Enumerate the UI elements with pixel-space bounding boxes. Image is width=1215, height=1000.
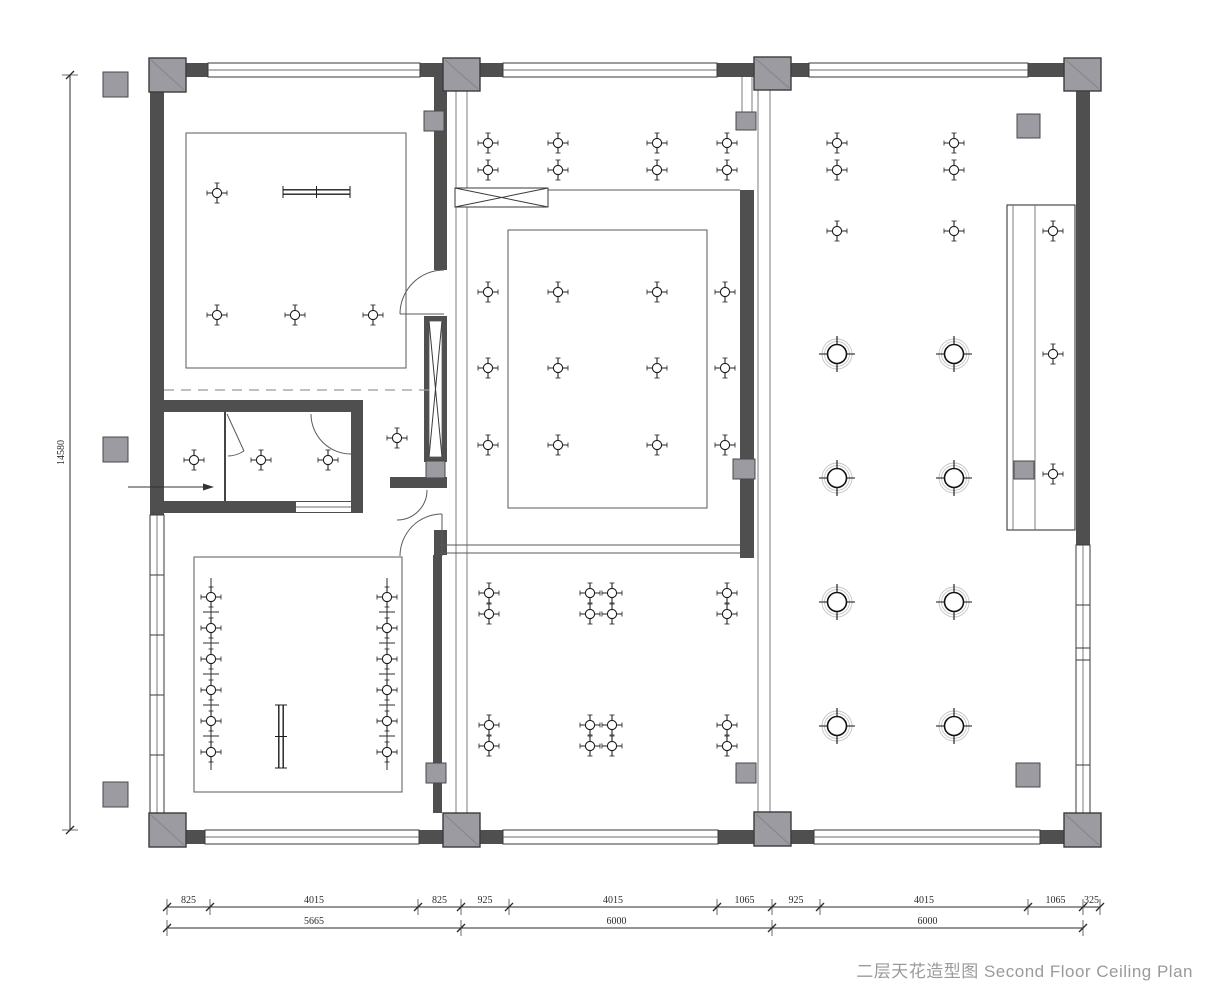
ceiling-light-small: [602, 583, 622, 603]
dimension-label: 825: [432, 895, 447, 906]
ceiling-light-small: [602, 736, 622, 756]
ceiling-light-small: [602, 715, 622, 735]
track-light-lines-layer: [203, 578, 395, 770]
ceiling-light-small: [363, 305, 383, 325]
dimension-label: 4015: [603, 895, 623, 906]
ceiling-light-small: [201, 711, 221, 731]
ceiling-light-small: [715, 358, 735, 378]
window-band-top: [208, 63, 1028, 77]
ceiling-light-small: [377, 711, 397, 731]
ceiling-light-small: [548, 282, 568, 302]
corner-column: [149, 58, 186, 92]
linear-light-fixture: [283, 186, 350, 198]
ceiling-light-small: [184, 450, 204, 470]
ceiling-light-small: [377, 587, 397, 607]
ceiling-light-small: [647, 435, 667, 455]
ceiling-features: [186, 133, 1075, 792]
door-small-room-partition: [227, 414, 244, 456]
ceiling-light-small: [207, 183, 227, 203]
door-corridor: [397, 490, 427, 520]
ceiling-light-large: [819, 708, 855, 744]
ceiling-light-small: [479, 736, 499, 756]
dimension-label: 6000: [607, 916, 627, 927]
ceiling-light-small: [827, 160, 847, 180]
doors: [227, 270, 444, 556]
beam-x-box: [455, 188, 548, 207]
ceiling-light-small: [647, 160, 667, 180]
dimension-label-vertical: 14580: [56, 440, 67, 465]
ceiling-light-small: [318, 450, 338, 470]
window-band-bottom: [205, 830, 1040, 844]
ceiling-light-small: [717, 604, 737, 624]
linear-fixture-layer: [275, 186, 350, 768]
ceiling-light-small: [580, 604, 600, 624]
ceiling-plan-canvas: 8254015825925401510659254015106532556656…: [0, 0, 1215, 1000]
ceiling-light-small: [548, 160, 568, 180]
ceiling-light-small: [201, 680, 221, 700]
dimension-label: 6000: [918, 916, 938, 927]
dimension-label: 4015: [914, 895, 934, 906]
ceiling-light-small: [479, 604, 499, 624]
coffer-bottom-left-room: [194, 557, 402, 792]
ceiling-light-small: [377, 649, 397, 669]
shaft: [424, 316, 447, 462]
ceiling-light-small: [387, 428, 407, 448]
ceiling-light-small: [478, 160, 498, 180]
ceiling-light-large: [936, 708, 972, 744]
floor-plan-drawing: 8254015825925401510659254015106532556656…: [0, 0, 1215, 1000]
ceiling-light-small: [717, 736, 737, 756]
ceiling-light-small: [548, 133, 568, 153]
ceiling-light-small: [479, 583, 499, 603]
ceiling-light-small: [827, 221, 847, 241]
ceiling-light-small: [580, 715, 600, 735]
ceiling-light-small: [201, 587, 221, 607]
ceiling-light-small: [377, 680, 397, 700]
ceiling-light-small: [548, 435, 568, 455]
ceiling-light-small: [478, 435, 498, 455]
ceiling-light-small: [548, 358, 568, 378]
window-band-left: [150, 515, 164, 813]
ceiling-light-small: [251, 450, 271, 470]
dimension-label: 4015: [304, 895, 324, 906]
ceiling-light-small: [717, 583, 737, 603]
ceiling-light-small: [602, 604, 622, 624]
ceiling-light-small: [377, 742, 397, 762]
ceiling-light-small: [944, 133, 964, 153]
dimension-label: 925: [478, 895, 493, 906]
dimension-label: 5665: [304, 916, 324, 927]
ceiling-light-small: [944, 160, 964, 180]
dimension-label: 1065: [1046, 895, 1066, 906]
ceiling-light-small: [201, 618, 221, 638]
ceiling-light-small: [377, 618, 397, 638]
ceiling-light-small: [580, 583, 600, 603]
ceiling-light-large: [819, 584, 855, 620]
ceiling-light-small: [647, 133, 667, 153]
dimension-label: 825: [181, 895, 196, 906]
dimension-label: 925: [789, 895, 804, 906]
ceiling-light-large: [936, 336, 972, 372]
ceiling-light-small: [827, 133, 847, 153]
ceiling-light-small: [944, 221, 964, 241]
ceiling-light-small: [285, 305, 305, 325]
ceiling-light-small: [201, 742, 221, 762]
linear-light-fixture: [275, 705, 287, 768]
entry-arrow: [128, 484, 214, 491]
ceiling-light-large: [936, 584, 972, 620]
ceiling-light-small: [717, 133, 737, 153]
ceiling-light-small: [478, 358, 498, 378]
door-top-left-room: [400, 270, 444, 314]
ceiling-light-large: [819, 460, 855, 496]
ceiling-light-small: [715, 435, 735, 455]
ceiling-light-small: [580, 736, 600, 756]
door-small-room-right: [311, 414, 351, 454]
coffer-central-hall-inner: [508, 230, 707, 508]
dimension-label: 325: [1084, 895, 1099, 906]
drawing-title: 二层天花造型图 Second Floor Ceiling Plan: [856, 957, 1193, 982]
ceiling-light-small: [715, 282, 735, 302]
ceiling-light-small: [717, 160, 737, 180]
ceiling-light-small: [201, 649, 221, 669]
ceiling-light-small: [647, 282, 667, 302]
ceiling-light-small: [207, 305, 227, 325]
ceiling-light-small: [647, 358, 667, 378]
window-band-right: [1076, 545, 1090, 813]
ceiling-light-small: [717, 715, 737, 735]
ceiling-light-small: [478, 133, 498, 153]
ceiling-light-large: [819, 336, 855, 372]
large-downlight-layer: [819, 336, 972, 744]
dimension-label: 1065: [735, 895, 755, 906]
small-downlight-layer: [184, 133, 1063, 762]
ceiling-light-small: [478, 282, 498, 302]
bulkhead-right: [1007, 205, 1075, 530]
ceiling-light-small: [479, 715, 499, 735]
coffer-top-left-room: [186, 133, 406, 368]
ceiling-light-large: [936, 460, 972, 496]
